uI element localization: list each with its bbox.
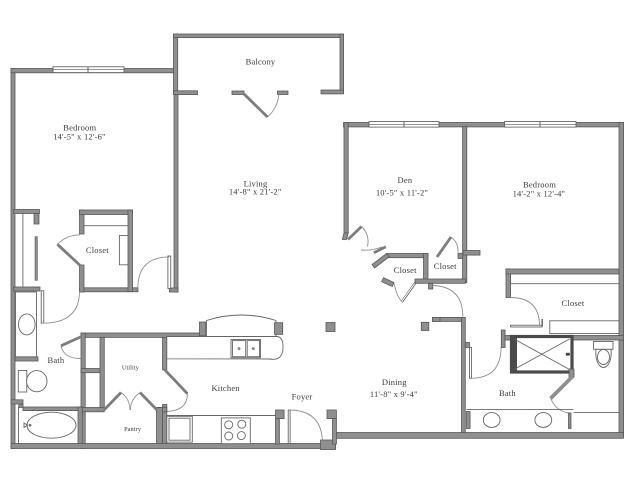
svg-text:14'-5" x 12'-6": 14'-5" x 12'-6": [53, 132, 106, 142]
svg-text:14'-2" x 12'-4": 14'-2" x 12'-4": [513, 189, 566, 199]
svg-text:Closet: Closet: [394, 265, 417, 275]
svg-text:Dining: Dining: [382, 377, 407, 387]
svg-text:Bath: Bath: [47, 355, 64, 365]
svg-text:Utility: Utility: [122, 365, 140, 372]
svg-text:Kitchen: Kitchen: [211, 383, 240, 393]
svg-text:Pantry: Pantry: [124, 426, 142, 433]
svg-text:Closet: Closet: [434, 261, 457, 271]
svg-text:10'-5" x 11'-2": 10'-5" x 11'-2": [376, 188, 428, 198]
svg-text:Foyer: Foyer: [292, 391, 313, 401]
svg-text:14'-8" x 21'-2": 14'-8" x 21'-2": [229, 187, 282, 197]
svg-text:Den: Den: [398, 175, 413, 185]
svg-text:Balcony: Balcony: [246, 57, 276, 67]
svg-text:Closet: Closet: [562, 298, 585, 308]
svg-text:11'-8" x 9'-4": 11'-8" x 9'-4": [370, 389, 418, 399]
svg-text:Bath: Bath: [499, 388, 516, 398]
svg-text:Closet: Closet: [86, 245, 109, 255]
